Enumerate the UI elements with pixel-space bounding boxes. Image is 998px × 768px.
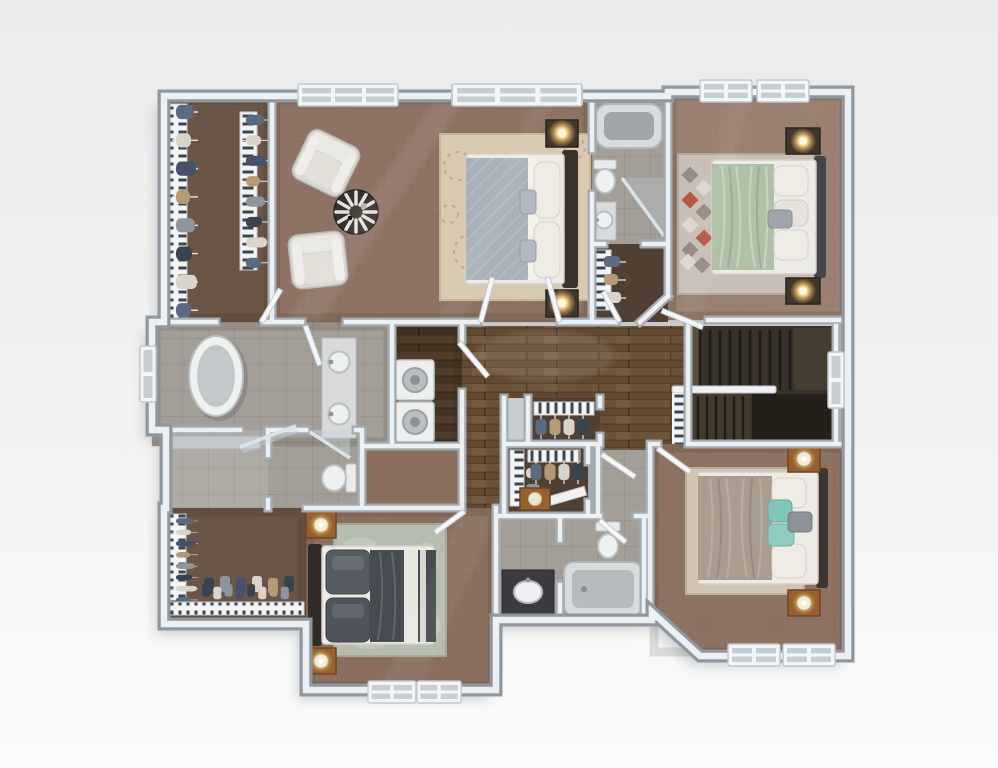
pillow <box>774 230 808 260</box>
drain <box>581 586 587 592</box>
tub-basin <box>197 345 235 407</box>
window-master-1 <box>298 84 398 106</box>
toilet <box>598 534 618 558</box>
floor-plan-render <box>0 0 998 768</box>
window-bedroom2-1 <box>700 80 752 102</box>
window-bedroom3-1 <box>368 681 416 703</box>
accent-pillow <box>768 210 792 228</box>
pillow <box>774 166 808 196</box>
window-bedroom4-1 <box>728 644 780 666</box>
faucet <box>329 412 334 417</box>
pillow-top <box>332 604 364 618</box>
pillow <box>534 162 560 218</box>
stair-void <box>752 394 834 444</box>
floor-plan-svg <box>0 0 998 768</box>
closet-rail <box>534 402 594 415</box>
accent-pillow <box>788 512 812 532</box>
hallway-right-floor <box>598 398 650 450</box>
bedroom3-entry-floor <box>362 446 462 508</box>
sink <box>514 581 542 603</box>
bedroom-4 <box>686 446 828 616</box>
accent-pillow <box>520 190 536 214</box>
window-bedroom2-2 <box>757 80 809 102</box>
accent-pillow <box>520 240 536 262</box>
pillow-top <box>332 556 364 570</box>
hanging-clothes <box>604 256 620 267</box>
toilet-tank <box>346 464 356 492</box>
hallway-branch-floor <box>462 398 504 508</box>
window-bedroom4-2 <box>783 644 835 666</box>
pillow <box>772 544 806 578</box>
toilet <box>595 169 615 193</box>
toilet <box>322 465 346 491</box>
balusters <box>672 393 685 444</box>
pillow <box>534 222 560 278</box>
tray <box>529 493 542 506</box>
water-closet <box>322 464 356 492</box>
hanging-clothes <box>604 274 618 285</box>
window-master-2 <box>452 84 582 106</box>
window-stairwell <box>828 352 844 408</box>
shoe-shelf <box>170 602 304 615</box>
bed <box>698 468 828 588</box>
bathtub-basin <box>604 112 654 140</box>
toilet-tank <box>594 160 616 169</box>
window-master-bath <box>140 346 156 402</box>
window-bedroom3-2 <box>417 681 461 703</box>
faucet <box>526 578 531 583</box>
faucet <box>329 360 334 365</box>
